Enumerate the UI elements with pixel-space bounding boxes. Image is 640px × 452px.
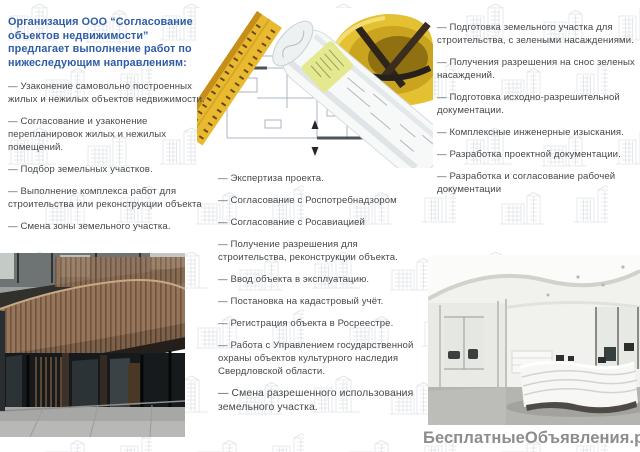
service-item: — Регистрация объекта в Росреестре. <box>218 317 426 330</box>
middle-column: — Экспертиза проекта. — Согласование с Р… <box>218 172 426 424</box>
service-item: — Согласование с Росавиацией <box>218 216 426 229</box>
service-item: — Постановка на кадастровый учёт. <box>218 295 426 308</box>
service-item: — Ввод объекта в эксплуатацию. <box>218 273 426 286</box>
site-watermark: БесплатныеОбъявления.рф <box>423 429 640 448</box>
service-item: — Узаконение самовольно построенных жилы… <box>8 80 213 106</box>
service-item: — Разработка проектной документации. <box>437 148 637 161</box>
service-item: — Выполнение комплекса работ для строите… <box>8 185 213 211</box>
service-item: — Подготовка земельного участка для стро… <box>437 21 637 47</box>
service-item: — Подготовка исходно-разрешительной доку… <box>437 91 637 117</box>
service-item: — Согласование и узаконение перепланиров… <box>8 115 213 154</box>
service-item: — Экспертиза проекта. <box>218 172 426 185</box>
service-item: — Получения разрешения на снос зеленых н… <box>437 56 637 82</box>
left-column: Организация ООО “Согласование объектов н… <box>8 16 213 242</box>
brochure-page: Организация ООО “Согласование объектов н… <box>0 0 640 452</box>
blueprint-ruler-hardhat-photo <box>197 8 433 168</box>
intro-heading: Организация ООО “Согласование объектов н… <box>8 16 213 70</box>
service-item: — Получение разрешения для строительства… <box>218 238 426 264</box>
service-item: — Работа с Управлением государственной о… <box>218 339 426 378</box>
service-item: — Согласование с Роспотребнадзором <box>218 194 426 207</box>
office-interior-photo <box>428 255 640 425</box>
service-item: — Разработка и согласование рабочей доку… <box>437 170 637 196</box>
service-item: — Смена разрешенного использования земел… <box>218 387 426 415</box>
right-column: — Подготовка земельного участка для стро… <box>437 21 637 205</box>
building-facade-photo <box>0 253 185 437</box>
service-item: — Смена зоны земельного участка. <box>8 220 213 233</box>
service-item: — Комплексные инженерные изыскания. <box>437 126 637 139</box>
service-item: — Подбор земельных участков. <box>8 163 213 176</box>
